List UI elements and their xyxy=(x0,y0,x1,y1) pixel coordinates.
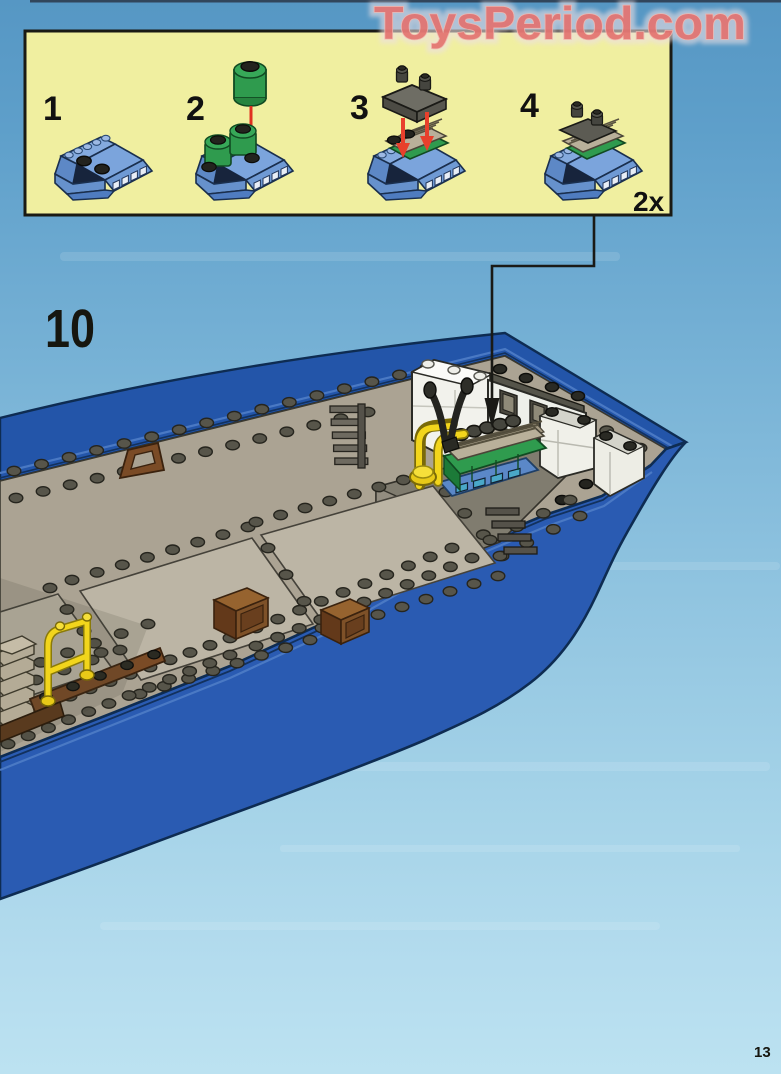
svg-text:13: 13 xyxy=(754,1044,771,1061)
svg-text:10: 10 xyxy=(45,299,95,359)
svg-text:2x: 2x xyxy=(633,186,665,217)
svg-text:ToysPeriod.com: ToysPeriod.com xyxy=(374,0,746,49)
svg-text:2: 2 xyxy=(186,90,205,128)
svg-text:3: 3 xyxy=(350,89,369,127)
svg-text:1: 1 xyxy=(43,90,62,128)
svg-text:4: 4 xyxy=(520,87,539,125)
